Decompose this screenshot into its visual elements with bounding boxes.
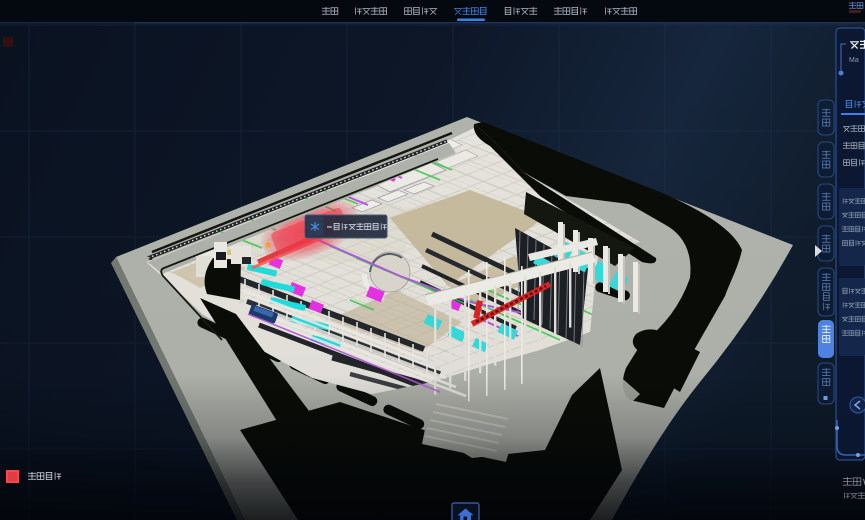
svg-text:Ma: Ma: [849, 57, 859, 64]
